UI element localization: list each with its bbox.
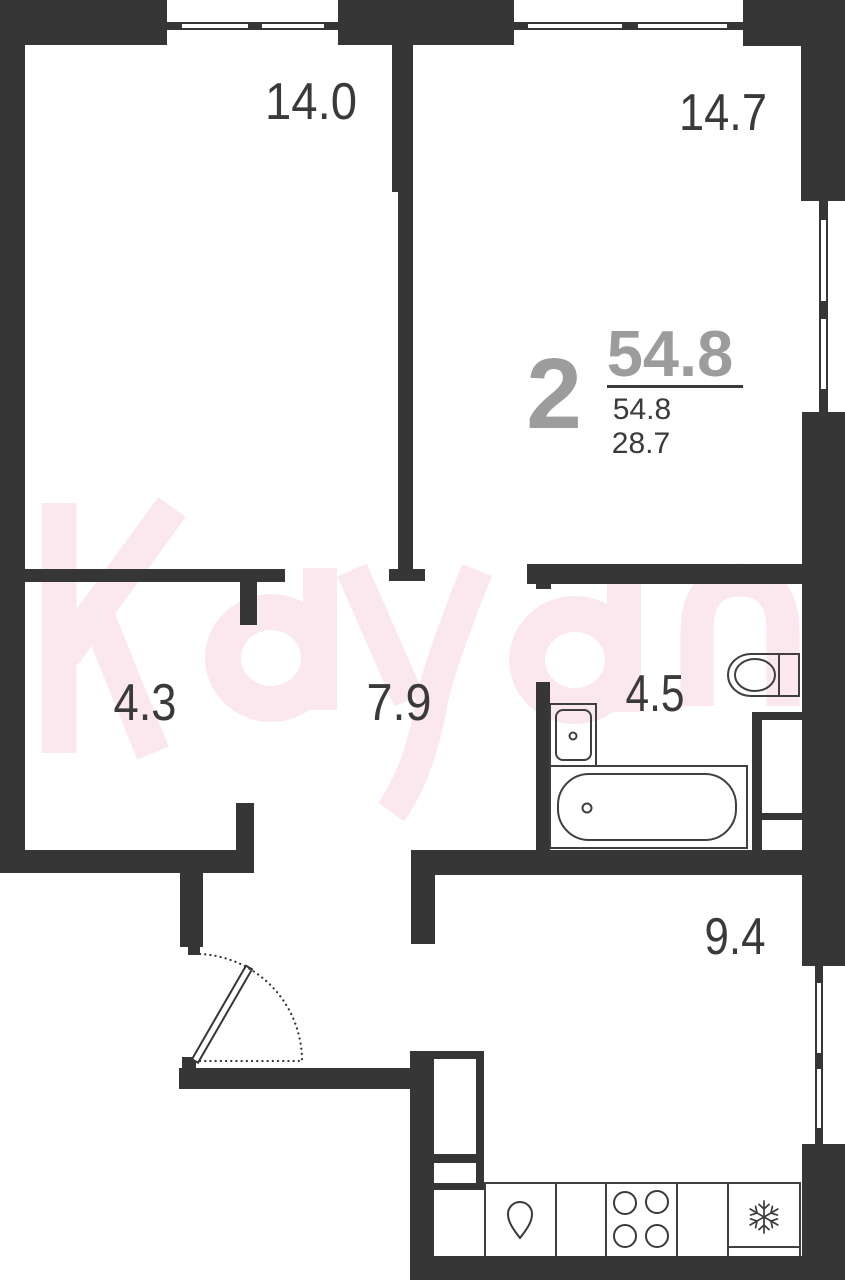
svg-text:28.7: 28.7	[612, 427, 670, 460]
svg-text:4.3: 4.3	[114, 674, 177, 732]
svg-text:14.7: 14.7	[679, 84, 767, 142]
svg-text:14.0: 14.0	[265, 73, 357, 131]
svg-text:7.9: 7.9	[367, 674, 432, 732]
svg-text:54.8: 54.8	[613, 393, 671, 426]
svg-text:4.5: 4.5	[626, 665, 685, 723]
svg-text:9.4: 9.4	[705, 908, 766, 966]
svg-text:54.8: 54.8	[607, 317, 734, 390]
svg-text:2: 2	[526, 338, 582, 450]
